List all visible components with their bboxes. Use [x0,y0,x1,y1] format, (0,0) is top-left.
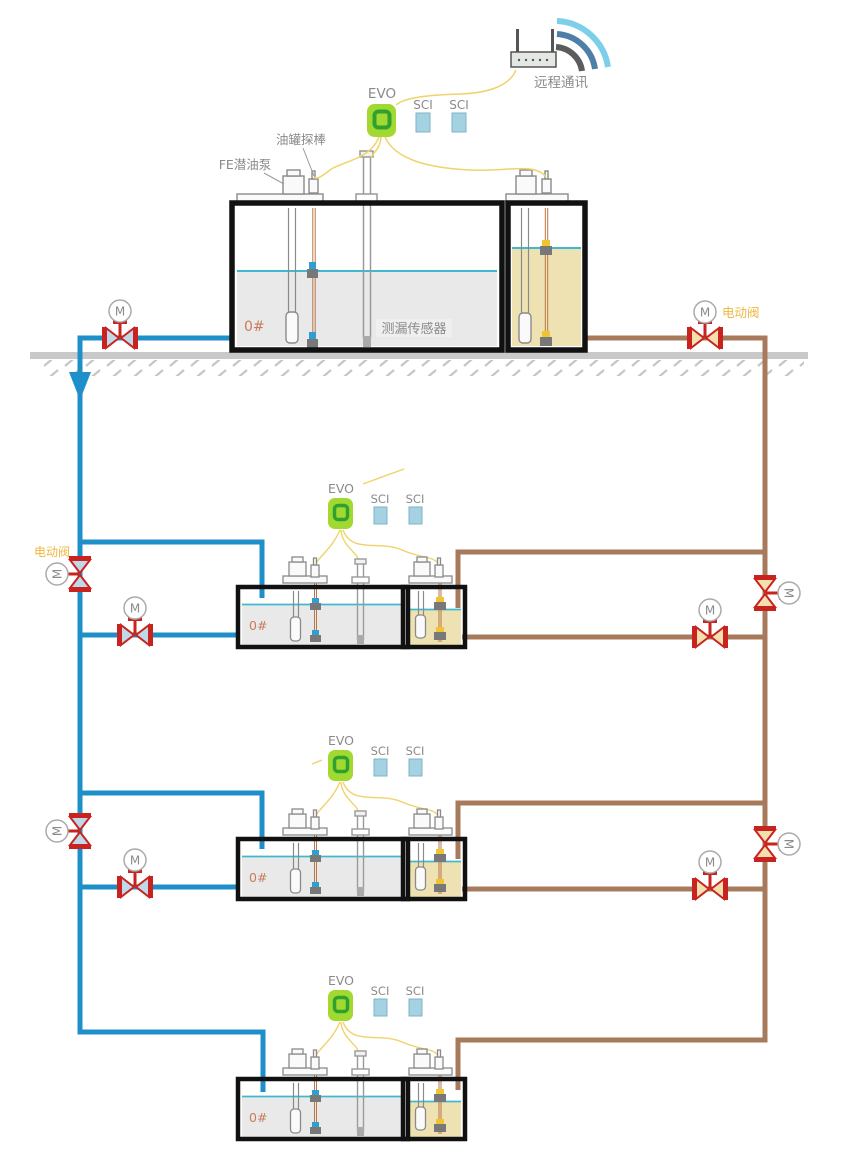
brown-main-pipe [458,338,765,1090]
fuel-volume-gray [237,270,497,346]
electric-valve-label: 电动阀 [34,545,70,559]
motor-circle [778,582,800,604]
wifi-icon [556,21,608,71]
evo-body [367,104,396,137]
probe-head [309,179,318,193]
callout-line [303,148,314,176]
motor-circle [124,597,146,619]
flow-arrow-down [69,372,91,400]
motor-circle [109,300,131,322]
motor-valve [692,871,728,900]
electric-valve-label: 电动阀 [722,305,760,320]
station-tank: 0# 测漏传感器 油罐探棒 FE潜油泵 [219,132,585,350]
tank-probe-label: 油罐探棒 [276,132,327,147]
motor-circle [694,301,716,323]
bus-cable [363,469,404,484]
router-antenna [516,29,519,54]
sci-box [452,113,466,132]
motor-circle [124,849,146,871]
probe-head [542,179,551,193]
blue-fill-branch [80,793,262,849]
brown-fill-branch [458,803,765,859]
submersible-pump-body [286,312,298,343]
motor-circle [46,563,68,585]
motor-valve [102,320,138,349]
sci-label: SCI [413,98,433,112]
router-antenna [551,29,554,54]
motor-circle [699,599,721,621]
motor-valve [117,617,153,646]
underground-tank-3 [238,973,465,1139]
callout-line [264,173,284,184]
blue-pipeline [80,338,263,1092]
leak-sensor-label: 测漏传感器 [381,321,446,337]
submersible-pump-label: FE潜油泵 [219,157,272,172]
blue-main-pipe [80,338,263,1092]
motor-valve [692,619,728,648]
fuel-grade-label: 0# [244,319,265,335]
underground-tank-2 [238,733,465,899]
motor-circle [778,833,800,855]
motor-circle [699,851,721,873]
brown-pipeline [458,338,765,1090]
bus-cable [312,760,322,764]
tank-farm-diagram: M EVO SCI SCI [0,0,856,1154]
station-controller: EVO SCI SCI [314,70,546,178]
submersible-pump-body [519,313,531,343]
underground-tank-1 [238,481,465,647]
remote-comm-router: 远程通讯 [511,21,608,91]
motor-valve [687,320,723,349]
brown-fill-branch [458,552,765,608]
blue-fill-branch [80,542,262,598]
motor-valve [117,869,153,898]
sci-label: SCI [449,98,469,112]
motor-circle [46,820,68,842]
ground-line [30,352,808,376]
sci-box [416,113,430,132]
remote-comm-label: 远程通讯 [534,75,588,91]
evo-label: EVO [368,86,396,102]
